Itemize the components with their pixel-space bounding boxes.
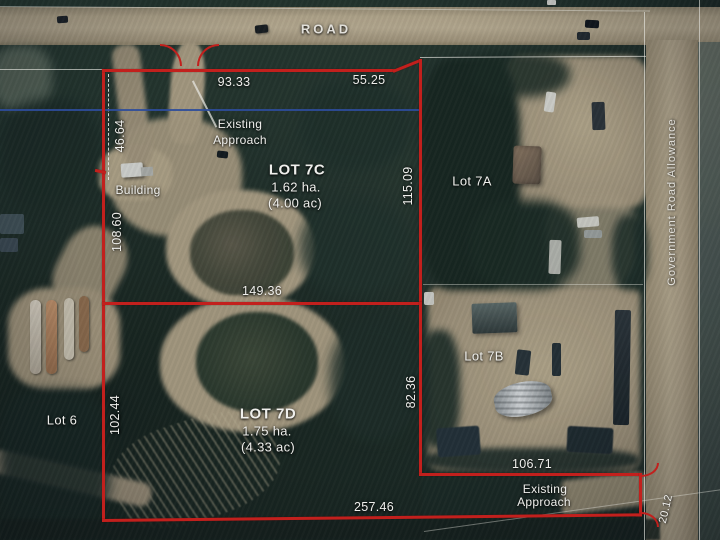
lot6-name: Lot 6	[47, 413, 77, 428]
house-7a	[512, 146, 541, 185]
trailer-row-7b	[613, 310, 631, 425]
utility-line-blue	[0, 109, 421, 111]
trees-7c-mid	[300, 80, 410, 170]
lot7d-area-ha: 1.75 ha.	[242, 424, 291, 439]
vehicle-7b-2	[515, 349, 532, 375]
approach-bottom-label-line1: Existing	[523, 482, 567, 496]
car-road-1	[255, 24, 269, 33]
survey-line-allowance-east	[699, 0, 700, 540]
boundary-approach-north	[419, 473, 640, 476]
trailer-7a-2	[577, 216, 600, 228]
trees-7a-top	[470, 52, 570, 97]
building-label: Building	[115, 183, 160, 197]
tank-lot6-4	[79, 296, 89, 352]
truck-7a-dark	[592, 102, 606, 130]
tank-lot6-3	[64, 298, 74, 360]
dim-lot7c-east: 115.09	[401, 166, 415, 205]
lot7d-area-ac: (4.33 ac)	[241, 440, 295, 455]
tank-lot6-2	[46, 300, 57, 374]
building-7c-ext	[141, 167, 154, 177]
trees-7a-east	[612, 215, 648, 290]
dim-lot7c-west: 108.60	[110, 212, 124, 252]
vehicle-7b-4	[436, 426, 481, 458]
vehicle-7b-1	[424, 292, 434, 305]
trees-left-top	[0, 100, 100, 210]
dim-lot7d-south: 257.46	[354, 500, 394, 514]
survey-line-lot7b-north	[423, 284, 643, 285]
vehicle-7b-3	[552, 343, 561, 376]
lot7a-name: Lot 7A	[452, 174, 491, 189]
south-band	[0, 519, 660, 540]
car-road-3	[577, 32, 590, 40]
survey-line-west-extension	[0, 69, 103, 70]
vehicle-7b-5	[566, 426, 613, 454]
dim-lot7d-west: 102.44	[108, 395, 122, 435]
trees-7a-south	[470, 200, 580, 290]
aerial-survey-map: ROAD Government Road Allowance 93.33 55.…	[0, 0, 720, 540]
dashed-line-46-64	[108, 74, 109, 180]
boundary-7c-east	[419, 59, 422, 305]
survey-line-allowance-west	[644, 12, 645, 540]
industrial-left-1	[0, 214, 24, 234]
approach-bottom-label-line2: Approach	[517, 495, 571, 509]
shed-7b	[471, 302, 517, 334]
loop-7d-inner	[196, 312, 318, 412]
lot7c-area-ac: (4.00 ac)	[268, 196, 322, 211]
industrial-left-2	[0, 238, 18, 252]
boundary-approach-east	[639, 473, 642, 515]
boundary-7c-north	[102, 69, 395, 72]
lot7b-name: Lot 7B	[464, 349, 503, 364]
boundary-7c-7d-mid	[102, 302, 422, 305]
dim-approach-north: 106.71	[512, 457, 552, 471]
government-road-allowance-label: Government Road Allowance	[666, 118, 678, 285]
lot7c-area-ha: 1.62 ha.	[271, 180, 320, 195]
east-ditch	[698, 42, 720, 540]
boundary-7d-east	[419, 302, 422, 476]
lot7c-name: LOT 7C	[269, 162, 325, 179]
trees-left-bottom	[0, 390, 110, 520]
dim-lot7c-south: 149.36	[242, 284, 282, 298]
vehicle-7c	[217, 150, 229, 158]
top-road	[0, 7, 720, 45]
boundary-west	[102, 69, 105, 522]
dim-lot7c-north-east: 55.25	[353, 73, 386, 87]
dim-west-upper: 46.64	[113, 120, 127, 153]
dim-lot7d-east: 82.36	[404, 376, 418, 409]
approach-top-label-line1: Existing	[218, 117, 262, 131]
car-road-4	[57, 16, 68, 24]
trailer-7a-4	[548, 240, 561, 274]
tank-lot6-1	[30, 300, 41, 374]
car-road-2	[585, 20, 599, 29]
dim-lot7c-north-west: 93.33	[218, 75, 251, 89]
lot7d-name: LOT 7D	[240, 406, 296, 423]
road-label: ROAD	[301, 22, 351, 37]
trees-7c-low	[300, 200, 410, 295]
trailer-road-white	[547, 0, 556, 5]
approach-top-label-line2: Approach	[213, 133, 267, 147]
trailer-7a-3	[584, 230, 602, 238]
